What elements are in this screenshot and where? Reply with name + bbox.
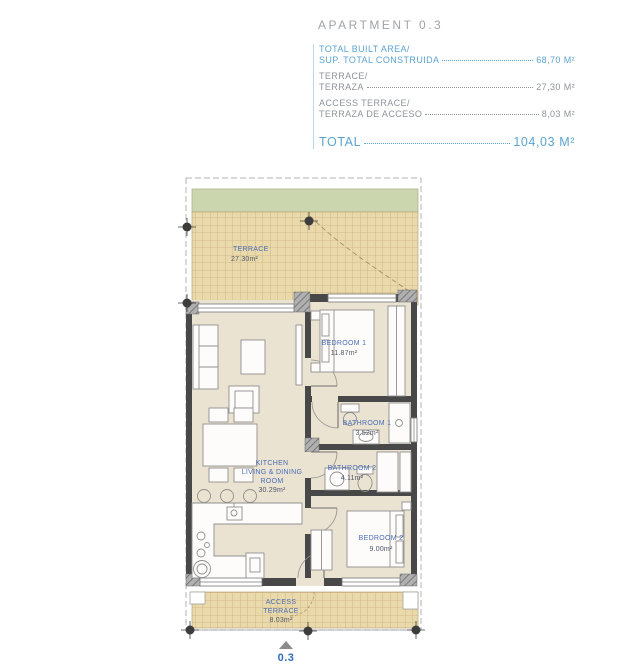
terrace-label: TERRACE [233, 246, 269, 253]
toilet1-cistern [341, 404, 359, 412]
bathroom2-label: BATHROOM 2 [328, 465, 377, 472]
access-terrace-area [192, 592, 418, 628]
terrace-area [192, 212, 418, 305]
access-terrace-label-line1: ACCESS [266, 599, 297, 606]
bathroom1-area-label: 3.52m² [356, 430, 379, 437]
pillow [396, 515, 403, 537]
kitchen-label-line3: ROOM [261, 478, 284, 485]
bedroom1-area-label: 11.87m² [331, 350, 358, 357]
shower2 [400, 452, 411, 492]
kitchen-appliance [246, 553, 264, 578]
column [183, 299, 192, 308]
nightstand [311, 311, 320, 320]
dining-chair [234, 408, 253, 422]
unit-number: 0.3 [278, 652, 295, 664]
column [304, 627, 313, 636]
terrace-area-label: 27.30m² [231, 256, 259, 263]
kitchen-label-line2: LIVING & DINING [242, 469, 303, 476]
dining-chair [209, 468, 228, 482]
bedroom2-label: BEDROOM 2 [359, 535, 404, 542]
bathtub2 [377, 452, 398, 492]
column [183, 223, 192, 232]
bedroom1-label: BEDROOM 1 [322, 340, 367, 347]
nightstand [311, 363, 320, 372]
kitchen-area-label: 30.29m² [258, 487, 286, 494]
unit-marker: 0.3 [278, 641, 295, 664]
dining-chair [209, 408, 228, 422]
floorplan-drawing: TERRACE 27.30m² BEDROOM 1 11.87m² BATHRO… [0, 0, 624, 665]
column [412, 626, 421, 635]
access-terrace-label-line2: TERRACE [263, 608, 299, 615]
kitchen-label-line1: KITCHEN [256, 460, 289, 467]
planter-strip [192, 189, 418, 212]
tv-unit [296, 325, 302, 385]
pillow [322, 314, 329, 336]
column [305, 217, 314, 226]
access-terrace-area-label: 8.03m² [270, 617, 293, 624]
entrance-opening [296, 578, 324, 586]
kitchen-sink [227, 507, 242, 520]
dining-table [203, 424, 257, 466]
entrance-arrow-icon [279, 641, 293, 649]
terrace-step-left [190, 592, 205, 604]
bedroom2-area-label: 9.00m² [370, 546, 393, 553]
terrace-step-right [403, 592, 418, 609]
shower1 [389, 403, 410, 443]
bathroom2-area-label: 4.11m² [341, 475, 364, 482]
bathroom1-label: BATHROOM 1 [343, 420, 392, 427]
floorplan-page: APARTMENT 0.3 TOTAL BUILT AREA/ SUP. TOT… [0, 0, 624, 665]
pillow [396, 541, 403, 563]
coffee-table [241, 340, 265, 374]
sofa [193, 325, 218, 389]
column [186, 626, 195, 635]
nightstand [402, 502, 411, 510]
